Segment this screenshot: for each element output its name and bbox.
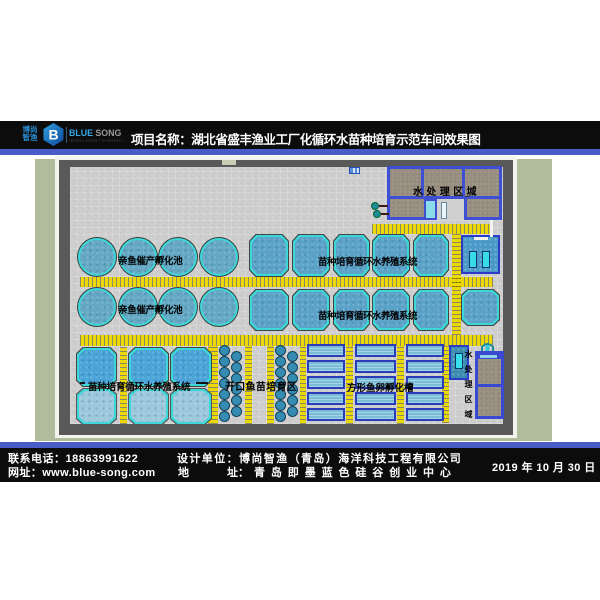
svg-text:B: B	[48, 127, 58, 143]
